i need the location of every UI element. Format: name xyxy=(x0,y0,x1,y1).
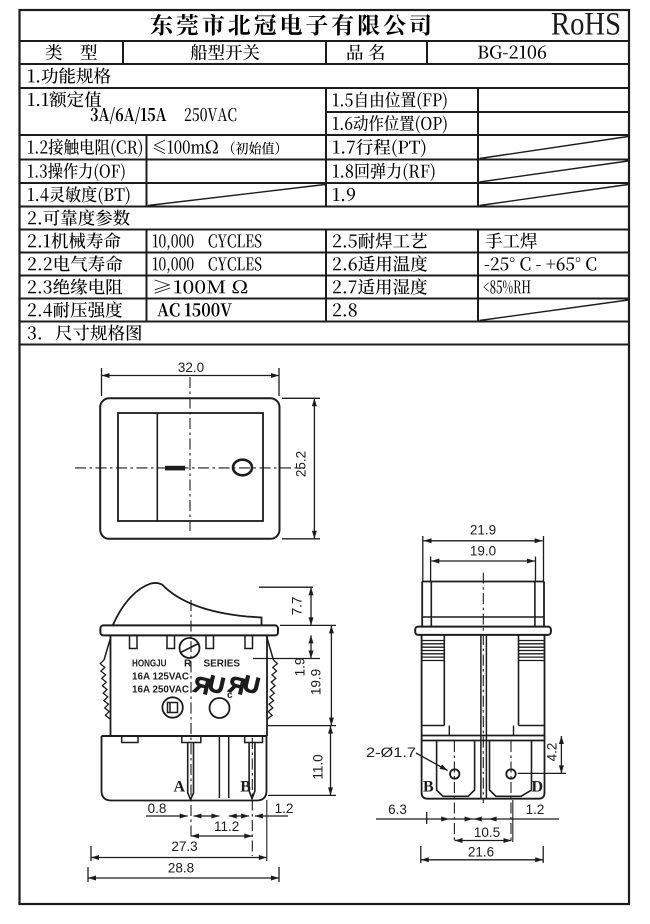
svg-text:4.2: 4.2 xyxy=(545,743,560,762)
svg-text:D: D xyxy=(532,779,544,796)
svg-text:R: R xyxy=(184,658,192,670)
svg-text:25.2: 25.2 xyxy=(294,451,309,477)
svg-text:c: c xyxy=(227,690,233,701)
svg-text:RoHS: RoHS xyxy=(551,7,621,43)
svg-text:B: B xyxy=(423,779,434,796)
svg-text:11.0: 11.0 xyxy=(311,754,326,779)
svg-text:21.9: 21.9 xyxy=(470,523,496,538)
svg-text:0.8: 0.8 xyxy=(148,801,167,816)
svg-text:A: A xyxy=(174,779,186,796)
svg-text:1.2: 1.2 xyxy=(526,802,545,817)
svg-text:21.6: 21.6 xyxy=(468,845,494,860)
svg-text:6.3: 6.3 xyxy=(388,802,407,817)
svg-text:16A 250VAC: 16A 250VAC xyxy=(132,683,189,695)
svg-text:19.9: 19.9 xyxy=(308,669,323,695)
svg-text:27.3: 27.3 xyxy=(171,839,197,854)
svg-text:16A 125VAC: 16A 125VAC xyxy=(132,671,189,683)
svg-text:2-Ø1.7: 2-Ø1.7 xyxy=(366,745,416,760)
svg-text:7.7: 7.7 xyxy=(290,597,305,616)
svg-text:32.0: 32.0 xyxy=(178,360,204,375)
svg-text:SERIES: SERIES xyxy=(204,658,241,670)
svg-text:28.8: 28.8 xyxy=(168,861,194,876)
svg-text:19.0: 19.0 xyxy=(470,544,496,559)
svg-text:1.2: 1.2 xyxy=(275,801,294,816)
svg-text:10.5: 10.5 xyxy=(474,825,500,840)
svg-text:HONGJU: HONGJU xyxy=(132,658,167,670)
svg-text:1.9: 1.9 xyxy=(292,658,307,677)
svg-text:11.2: 11.2 xyxy=(214,819,239,834)
svg-text:B: B xyxy=(240,779,251,796)
